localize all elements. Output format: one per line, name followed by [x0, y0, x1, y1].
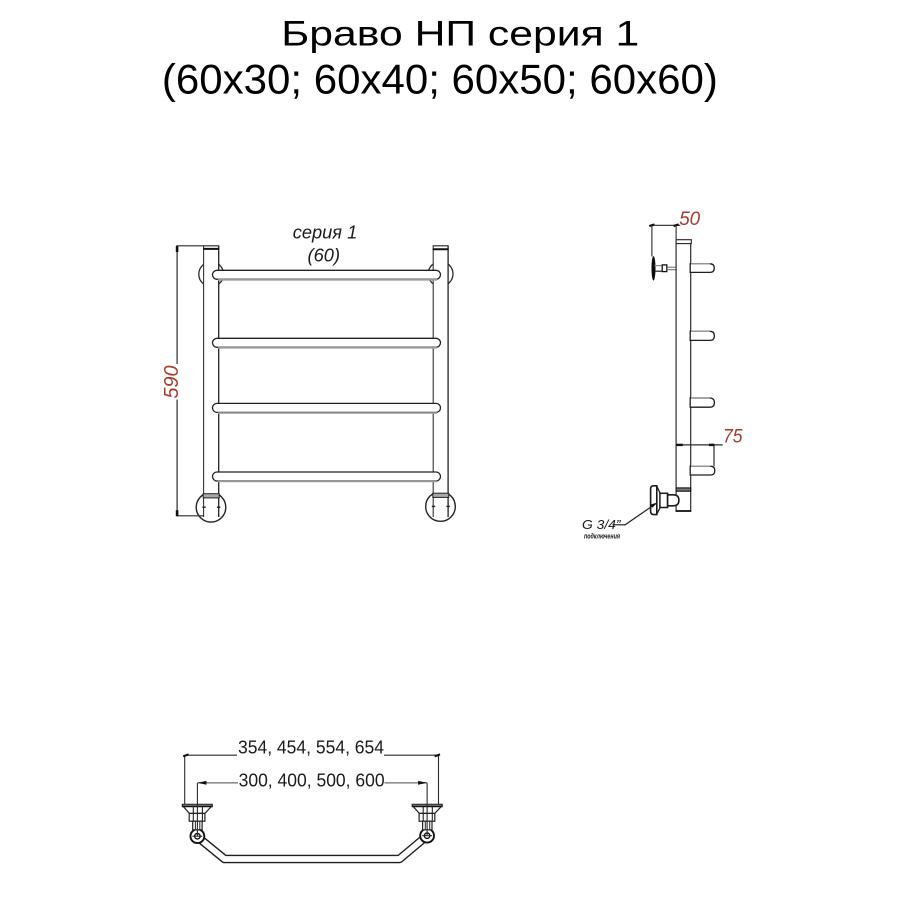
- svg-text:50: 50: [679, 209, 700, 230]
- svg-text:75: 75: [723, 427, 743, 448]
- svg-text:300, 400, 500, 600: 300, 400, 500, 600: [239, 769, 385, 790]
- svg-text:серия 1: серия 1: [293, 223, 358, 243]
- svg-text:590: 590: [161, 366, 183, 399]
- svg-text:354, 454, 554, 654: 354, 454, 554, 654: [238, 737, 384, 758]
- svg-text:(60x30; 60x40; 60x50; 60x60): (60x30; 60x40; 60x50; 60x60): [162, 55, 718, 102]
- svg-text:(60): (60): [308, 245, 341, 265]
- svg-text:G 3/4”: G 3/4”: [582, 517, 621, 532]
- svg-text:Браво НП серия 1: Браво НП серия 1: [281, 14, 639, 53]
- svg-text:подключения: подключения: [584, 532, 620, 541]
